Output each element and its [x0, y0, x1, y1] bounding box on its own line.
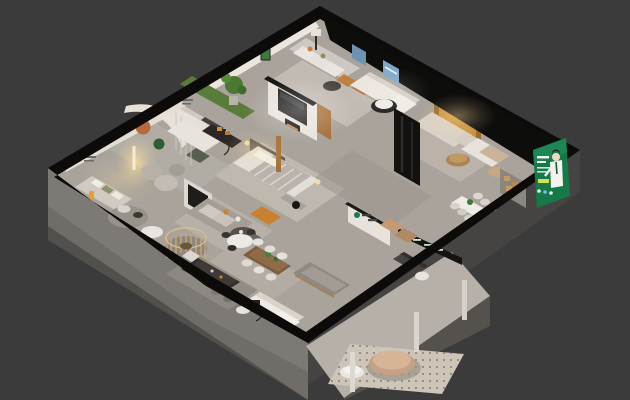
wood-coffee-table-top — [449, 153, 467, 163]
coffee-table — [118, 205, 131, 213]
terrace-table-tan-top — [373, 351, 411, 370]
floorplan-render — [0, 0, 630, 400]
counter-item-orange — [225, 131, 230, 135]
brand-logo-dot — [354, 212, 360, 218]
dining-chair — [450, 203, 460, 210]
accent-pillow — [321, 54, 326, 59]
dining-chair-black — [228, 245, 237, 251]
shelf-box — [504, 176, 510, 181]
table-plant — [467, 199, 473, 205]
reception-chair — [415, 272, 429, 281]
character-tie — [556, 162, 557, 174]
beanbag — [169, 164, 185, 176]
column — [350, 352, 355, 392]
green-ad-banner — [533, 138, 570, 208]
dining-chair-white — [254, 266, 265, 273]
dining-chair-black — [247, 229, 256, 235]
counter-speck — [211, 270, 214, 273]
accent-pillow — [308, 47, 313, 52]
counter-item-orange — [217, 127, 222, 131]
dining-chair — [473, 193, 483, 200]
glow — [80, 154, 160, 206]
pendant-dot — [292, 201, 300, 209]
counter-speck — [220, 276, 223, 279]
table-deco — [239, 230, 243, 234]
circle-decor-green — [154, 139, 165, 150]
render-canvas — [0, 0, 630, 400]
column — [462, 280, 467, 320]
dining-chair-white — [266, 273, 277, 280]
dining-chair-white — [242, 259, 253, 266]
plant-foliage — [238, 86, 247, 95]
dining-chair-white — [277, 252, 288, 259]
stair-center — [180, 243, 192, 250]
nightstand-lamp — [316, 180, 321, 185]
glow — [420, 94, 496, 138]
dining-chair — [480, 199, 490, 206]
glow — [348, 68, 432, 112]
coffee-table-dark — [133, 212, 143, 218]
brand-glyphs — [368, 219, 377, 221]
character-head — [552, 153, 560, 161]
dining-chair — [457, 209, 467, 216]
plant-pot — [229, 96, 238, 105]
beam-glyphs — [413, 239, 421, 241]
table-lamp-shade — [311, 29, 321, 36]
dining-chair-white — [253, 238, 264, 245]
accent-pillow — [235, 216, 240, 221]
brand-glyphs — [362, 214, 371, 216]
accent-pillow — [223, 209, 228, 214]
column — [414, 312, 419, 352]
glow — [221, 130, 289, 170]
dining-chair-white — [265, 245, 276, 252]
dining-chair-black — [222, 232, 231, 238]
